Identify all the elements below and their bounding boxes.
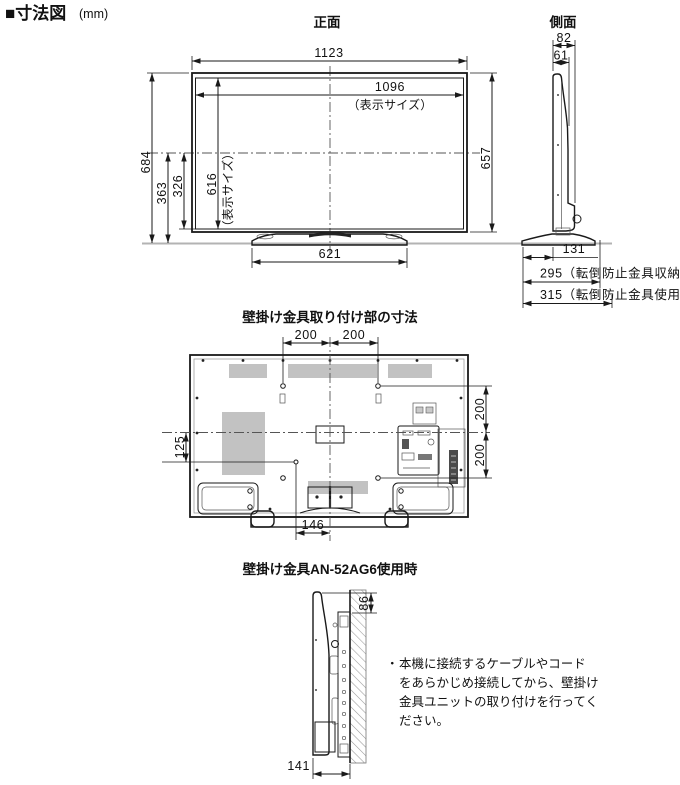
side-view: 側面 82 61 131 295（転倒防止金具収納時） 315（転倒防止金具使用… xyxy=(522,14,680,308)
stand-foot-right xyxy=(386,234,402,239)
dim-total-height: 684 xyxy=(139,151,153,174)
side-view-label: 側面 xyxy=(549,14,578,30)
front-view: 正面 1123 1096 （表示サイズ） 684 363 326 616 （表示… xyxy=(139,15,497,268)
dim-stand-front-depth: 131 xyxy=(563,242,586,256)
dim-hole-span-top: 200 xyxy=(473,398,487,421)
front-view-label: 正面 xyxy=(314,15,341,30)
tv-stand-rear xyxy=(251,486,408,527)
dim-display-height: 616 xyxy=(205,173,219,196)
diagram-canvas: ■寸法図 (mm) 正面 1123 1096 （表示サイズ） 684 363 xyxy=(0,0,680,785)
dim-stand-width: 621 xyxy=(319,247,342,261)
note-line-2: をあらかじめ接続してから、壁掛け xyxy=(399,675,599,690)
dim-depth-total: 82 xyxy=(556,31,571,45)
bracket-view-title: 壁掛け金具AN-52AG6使用時 xyxy=(243,561,418,577)
speaker-left xyxy=(198,483,258,514)
bracket-view: 壁掛け金具AN-52AG6使用時 86 xyxy=(243,561,599,779)
note-line-3: 金具ユニットの取り付けを行ってく xyxy=(399,694,598,709)
note-line-4: ださい。 xyxy=(399,714,449,728)
dim-depth-antitip-in-use: 315（転倒防止金具使用時） xyxy=(540,287,680,302)
antenna-terminal-panel xyxy=(413,403,436,424)
dimension-diagram-page: ■寸法図 (mm) 正面 1123 1096 （表示サイズ） 684 363 xyxy=(0,0,680,785)
dim-hole-span-right: 200 xyxy=(343,328,366,342)
dim-display-height-note: （表示サイズ） xyxy=(220,147,235,232)
rear-view: 壁掛け金具取り付け部の寸法 xyxy=(162,309,492,541)
note-line-1: 本機に接続するケーブルやコード xyxy=(399,656,586,671)
dim-center-to-base: 363 xyxy=(155,182,169,205)
dim-hole-span-bottom: 200 xyxy=(473,444,487,467)
wall-section xyxy=(350,590,366,763)
vesa-mount-holes xyxy=(280,384,381,481)
dim-wall-depth: 141 xyxy=(287,759,310,773)
dim-panel-height: 657 xyxy=(479,147,493,170)
caution-note: ・ 本機に接続するケーブルやコード をあらかじめ接続してから、壁掛け 金具ユニッ… xyxy=(386,656,599,728)
dim-hole-span-left: 200 xyxy=(295,328,318,342)
dim-depth-antitip-stowed: 295（転倒防止金具収納時） xyxy=(540,266,680,281)
tv-side-profile xyxy=(553,74,575,231)
dim-front-width: 1123 xyxy=(314,46,343,60)
rear-view-title: 壁掛け金具取り付け部の寸法 xyxy=(242,309,418,325)
page-title: ■寸法図 xyxy=(5,3,66,23)
speaker-right xyxy=(393,483,453,514)
dim-display-width: 1096 xyxy=(375,80,405,94)
dim-center-to-panel-bottom: 326 xyxy=(171,175,185,198)
dim-offset-left: 125 xyxy=(173,436,187,459)
rear-box-profile xyxy=(315,722,335,752)
dim-depth-panel: 61 xyxy=(553,49,568,63)
connector-panel xyxy=(398,426,439,475)
note-bullet: ・ xyxy=(386,657,399,671)
wall-bracket-unit xyxy=(330,612,350,757)
page-title-unit: (mm) xyxy=(79,7,108,21)
dim-offset-stand: 146 xyxy=(302,518,325,532)
dim-top-clearance: 86 xyxy=(357,595,371,610)
stand-foot-left xyxy=(257,234,273,239)
dim-display-width-note: （表示サイズ） xyxy=(347,97,432,112)
